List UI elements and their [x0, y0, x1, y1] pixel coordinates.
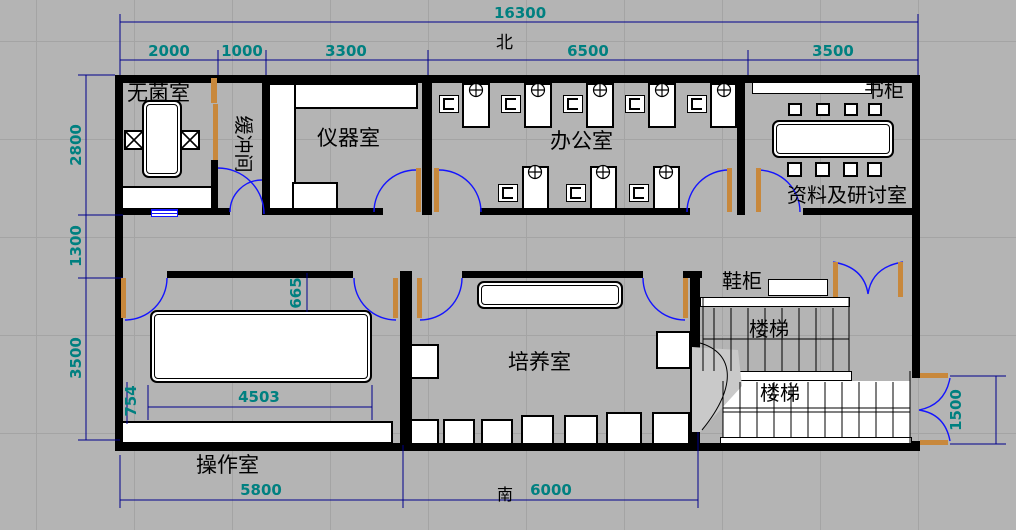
wall-exterior-east-stub — [912, 441, 920, 451]
dim-754: 754 — [123, 376, 139, 426]
door-arc-culture-east — [643, 278, 685, 320]
room-label-stairs-lower: 楼梯 — [760, 382, 800, 404]
culture-incubator — [652, 412, 690, 445]
wall-office-seminar — [737, 75, 745, 215]
seminar-chair — [787, 162, 802, 177]
room-label-culture: 培养室 — [508, 351, 571, 373]
operation-counter — [120, 421, 393, 444]
office-desk — [590, 166, 617, 212]
door-leaf-east-bottom — [920, 440, 948, 445]
door-leaf-seminar — [756, 168, 761, 212]
door-arc-office-west — [439, 170, 481, 212]
door-leaf-culture-east — [683, 278, 688, 318]
room-label-shoe-cabinet: 鞋柜 — [722, 270, 762, 292]
wall-north-row-south-3 — [480, 208, 690, 215]
dim-2800: 2800 — [68, 120, 84, 170]
dim-1300: 1300 — [68, 221, 84, 271]
sterile-equipment-left — [124, 130, 144, 150]
room-label-bookcase: 书柜 — [864, 79, 904, 101]
stair-lower-floor — [723, 381, 910, 438]
dim-1000: 1000 — [217, 43, 267, 59]
wall-buffer-instrument — [262, 75, 269, 215]
office-chair — [566, 184, 586, 202]
office-chair — [629, 184, 649, 202]
office-desk — [462, 83, 490, 128]
office-chair — [625, 95, 645, 113]
operation-table — [150, 310, 372, 383]
seminar-chair — [816, 103, 830, 116]
door-leaf-entrance-left — [833, 262, 838, 297]
dim-4503: 4503 — [234, 389, 284, 405]
culture-incubator — [481, 419, 513, 445]
shoe-cabinet — [768, 279, 828, 296]
seminar-chair — [815, 162, 830, 177]
wall-instrument-office — [422, 75, 432, 215]
seminar-chair — [843, 162, 858, 177]
dim-total-top: 16300 — [494, 5, 544, 21]
door-arc-instrument — [374, 170, 416, 212]
wall-exterior-east — [912, 75, 920, 378]
office-desk — [710, 83, 737, 128]
door-leaf-sterile-a — [211, 78, 217, 103]
dim-2000: 2000 — [144, 43, 194, 59]
dim-1500: 1500 — [948, 385, 964, 435]
wall-operation-culture — [400, 271, 412, 451]
room-label-office: 办公室 — [550, 130, 613, 152]
floor-plan-canvas: 16300 2000 1000 3300 6500 3500 2800 1300… — [0, 0, 1016, 530]
seminar-chair — [844, 103, 858, 116]
door-arc-east-double — [919, 378, 950, 441]
door-leaf-entrance-right — [898, 262, 903, 297]
door-leaf-operation-west — [121, 278, 126, 318]
wall-operation-north — [167, 271, 353, 278]
sterile-table — [142, 100, 182, 178]
door-arc-entrance-double — [833, 262, 903, 294]
culture-incubator — [606, 412, 642, 445]
compass-north-label: 北 — [496, 28, 513, 53]
culture-incubator — [521, 415, 554, 445]
dim-665: 665 — [288, 268, 304, 318]
culture-incubator — [564, 415, 598, 445]
office-desk — [522, 166, 549, 212]
door-arc-office-east — [687, 170, 729, 212]
dim-6500: 6500 — [563, 43, 613, 59]
culture-equipment-east — [656, 331, 691, 369]
wall-north-row-south-2 — [268, 208, 383, 215]
stair-landing-upper — [700, 297, 850, 307]
wall-north-row-south-4 — [803, 208, 920, 215]
office-chair — [563, 95, 583, 113]
culture-table — [477, 281, 623, 309]
door-leaf-office-east — [727, 168, 732, 212]
door-leaf-east-top — [920, 373, 948, 378]
door-leaf-sterile-b — [213, 104, 218, 160]
door-leaf-operation-east — [393, 278, 398, 318]
dim-3300: 3300 — [321, 43, 371, 59]
door-leaf-office-west — [434, 168, 439, 212]
seminar-chair — [788, 103, 802, 116]
office-chair — [498, 184, 518, 202]
office-desk — [653, 166, 680, 212]
room-label-seminar: 资料及研讨室 — [787, 184, 907, 206]
sterile-equipment-right — [180, 130, 200, 150]
door-leaf-culture-west — [417, 278, 422, 318]
dim-3500-left: 3500 — [68, 333, 84, 383]
wall-exterior-south — [115, 443, 920, 451]
room-label-operation: 操作室 — [196, 454, 259, 476]
office-chair — [687, 95, 707, 113]
door-arc-culture-west — [420, 278, 462, 320]
door-leaf-instrument — [416, 168, 421, 212]
room-label-instrument: 仪器室 — [317, 127, 380, 149]
office-chair — [501, 95, 521, 113]
seminar-chair — [867, 162, 882, 177]
dim-5800: 5800 — [236, 482, 286, 498]
dim-3500-top: 3500 — [808, 43, 858, 59]
seminar-chair — [868, 103, 882, 116]
culture-incubator — [443, 419, 475, 445]
room-label-buffer: 缓冲间 — [232, 112, 254, 176]
wall-exterior-north — [115, 75, 920, 83]
culture-incubator — [408, 419, 439, 445]
seminar-conference-table — [772, 120, 894, 158]
stair-landing-middle — [700, 371, 852, 381]
office-chair — [439, 95, 459, 113]
door-arc-buffer — [230, 180, 262, 212]
sterile-sink — [151, 209, 178, 217]
dim-6000: 6000 — [526, 482, 576, 498]
wall-culture-stairhall — [690, 271, 700, 451]
wall-sterile-buffer — [211, 160, 218, 215]
office-desk — [586, 83, 614, 128]
room-label-sterile: 无菌室 — [127, 82, 190, 104]
office-desk — [524, 83, 552, 128]
room-label-stairs-upper: 楼梯 — [749, 318, 789, 340]
wall-culture-north — [462, 271, 643, 278]
compass-south-label: 南 — [497, 481, 513, 505]
office-desk — [648, 83, 676, 128]
